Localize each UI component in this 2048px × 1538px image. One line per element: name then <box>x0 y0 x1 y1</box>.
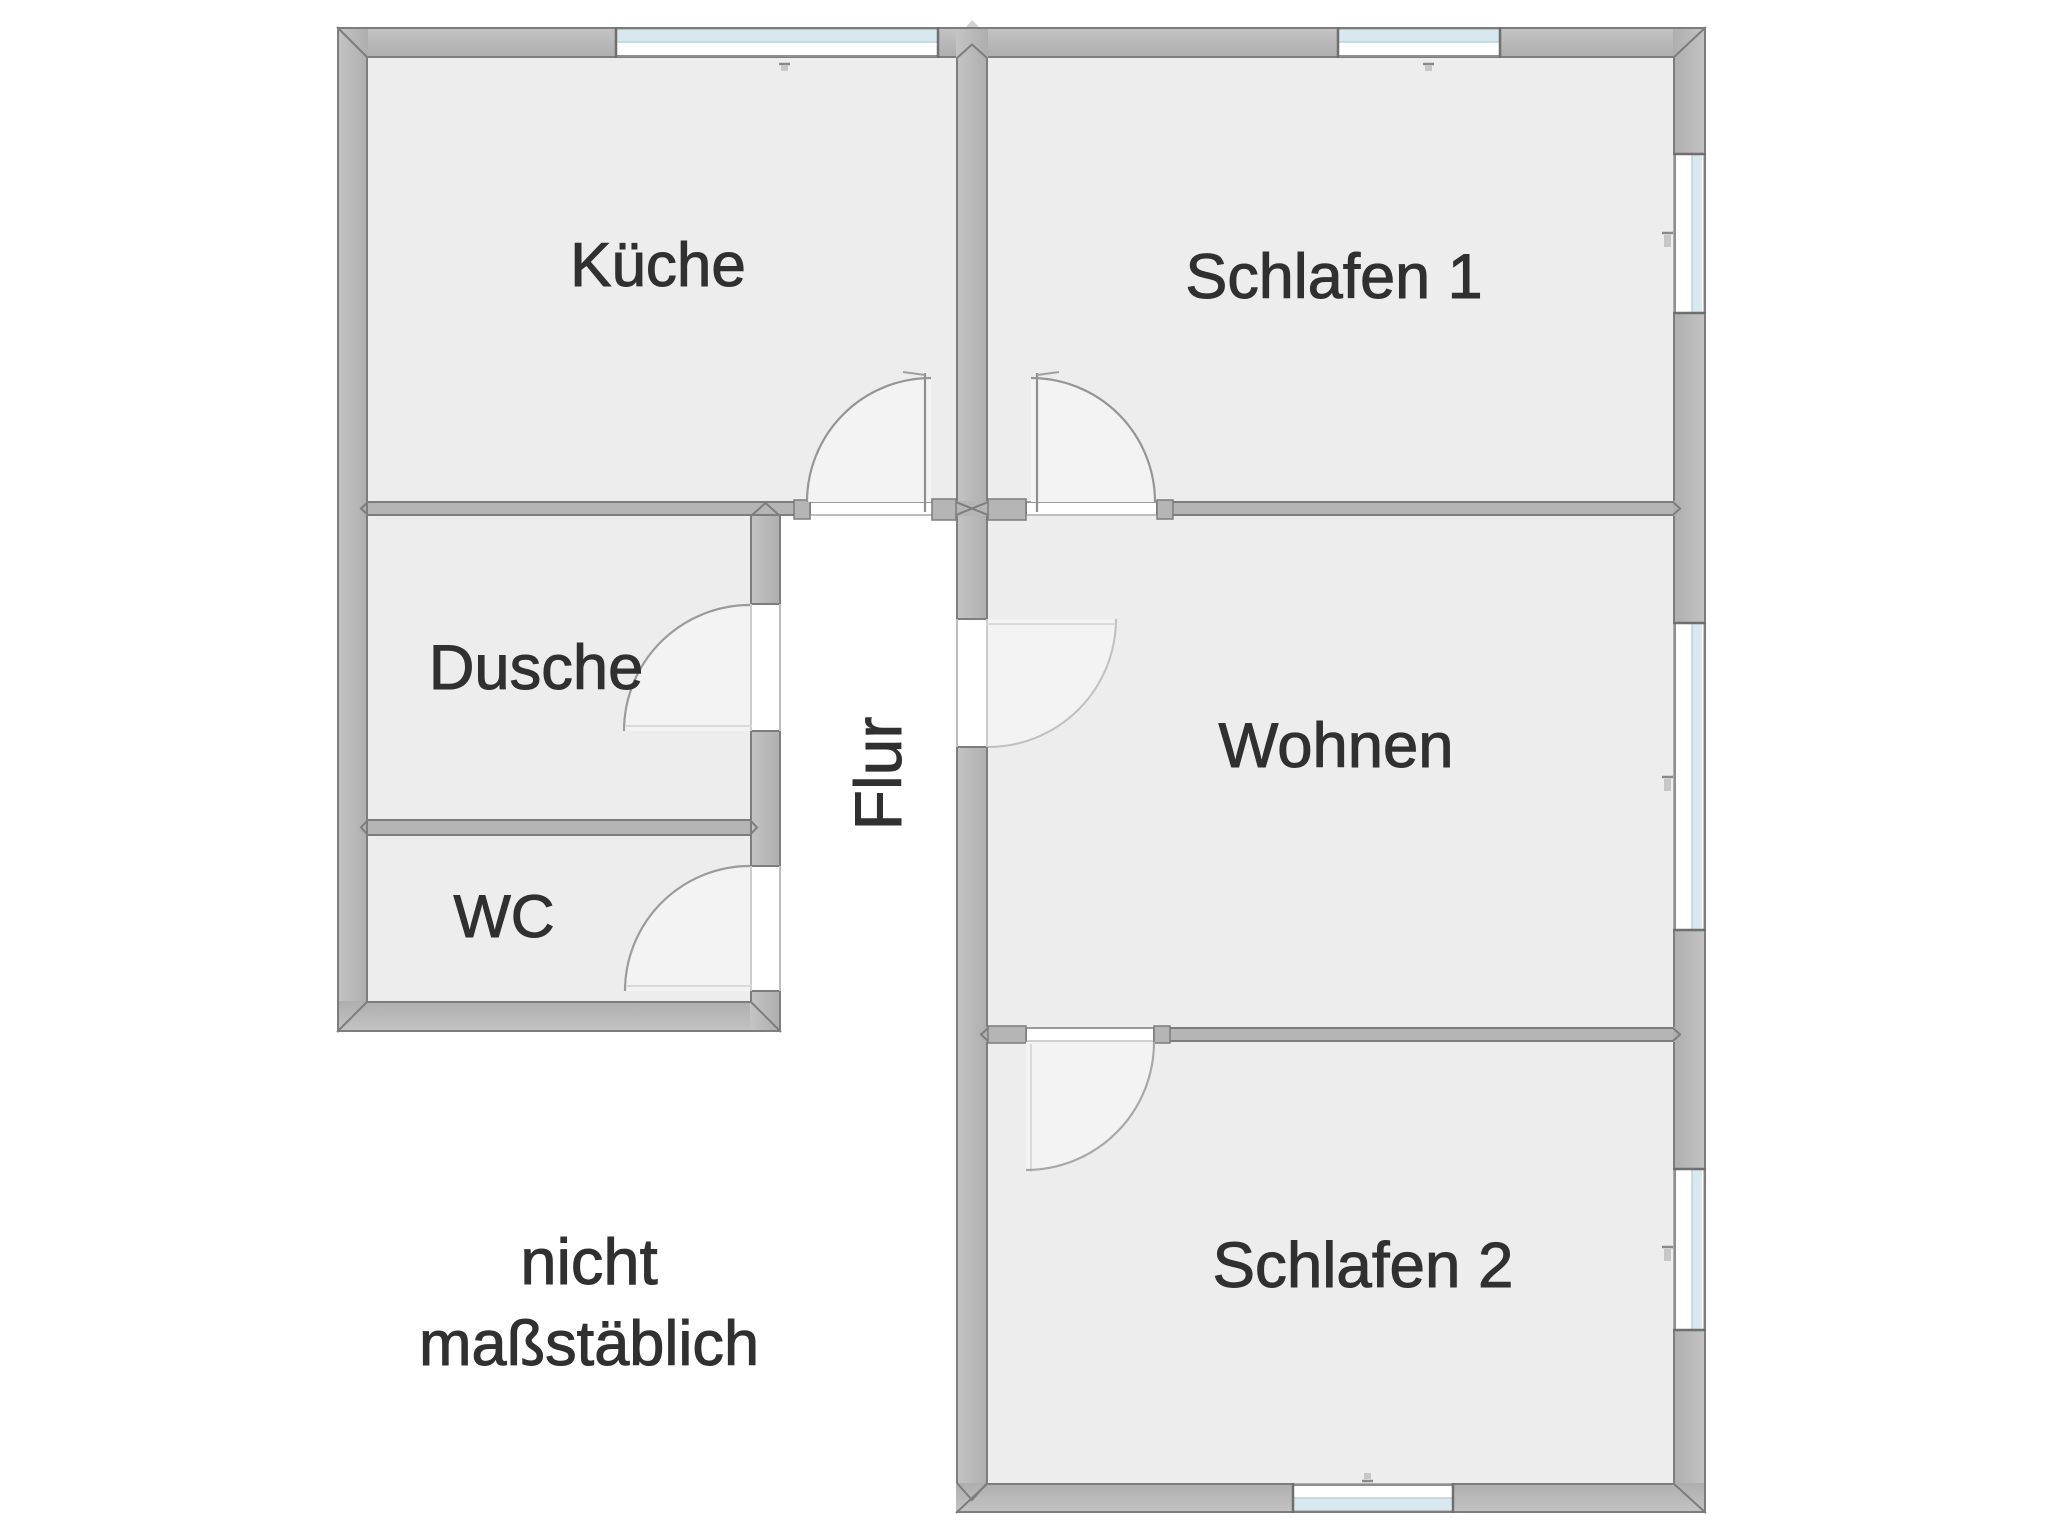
svg-text:WC: WC <box>453 882 554 950</box>
svg-text:Schlafen 2: Schlafen 2 <box>1213 1230 1514 1301</box>
svg-text:Flur: Flur <box>841 717 915 831</box>
svg-text:Küche: Küche <box>570 231 746 300</box>
svg-text:Schlafen 1: Schlafen 1 <box>1185 242 1482 312</box>
svg-text:Wohnen: Wohnen <box>1219 711 1454 781</box>
svg-text:maßstäblich: maßstäblich <box>419 1309 759 1379</box>
svg-text:nicht: nicht <box>520 1225 657 1298</box>
svg-text:Dusche: Dusche <box>429 633 644 703</box>
